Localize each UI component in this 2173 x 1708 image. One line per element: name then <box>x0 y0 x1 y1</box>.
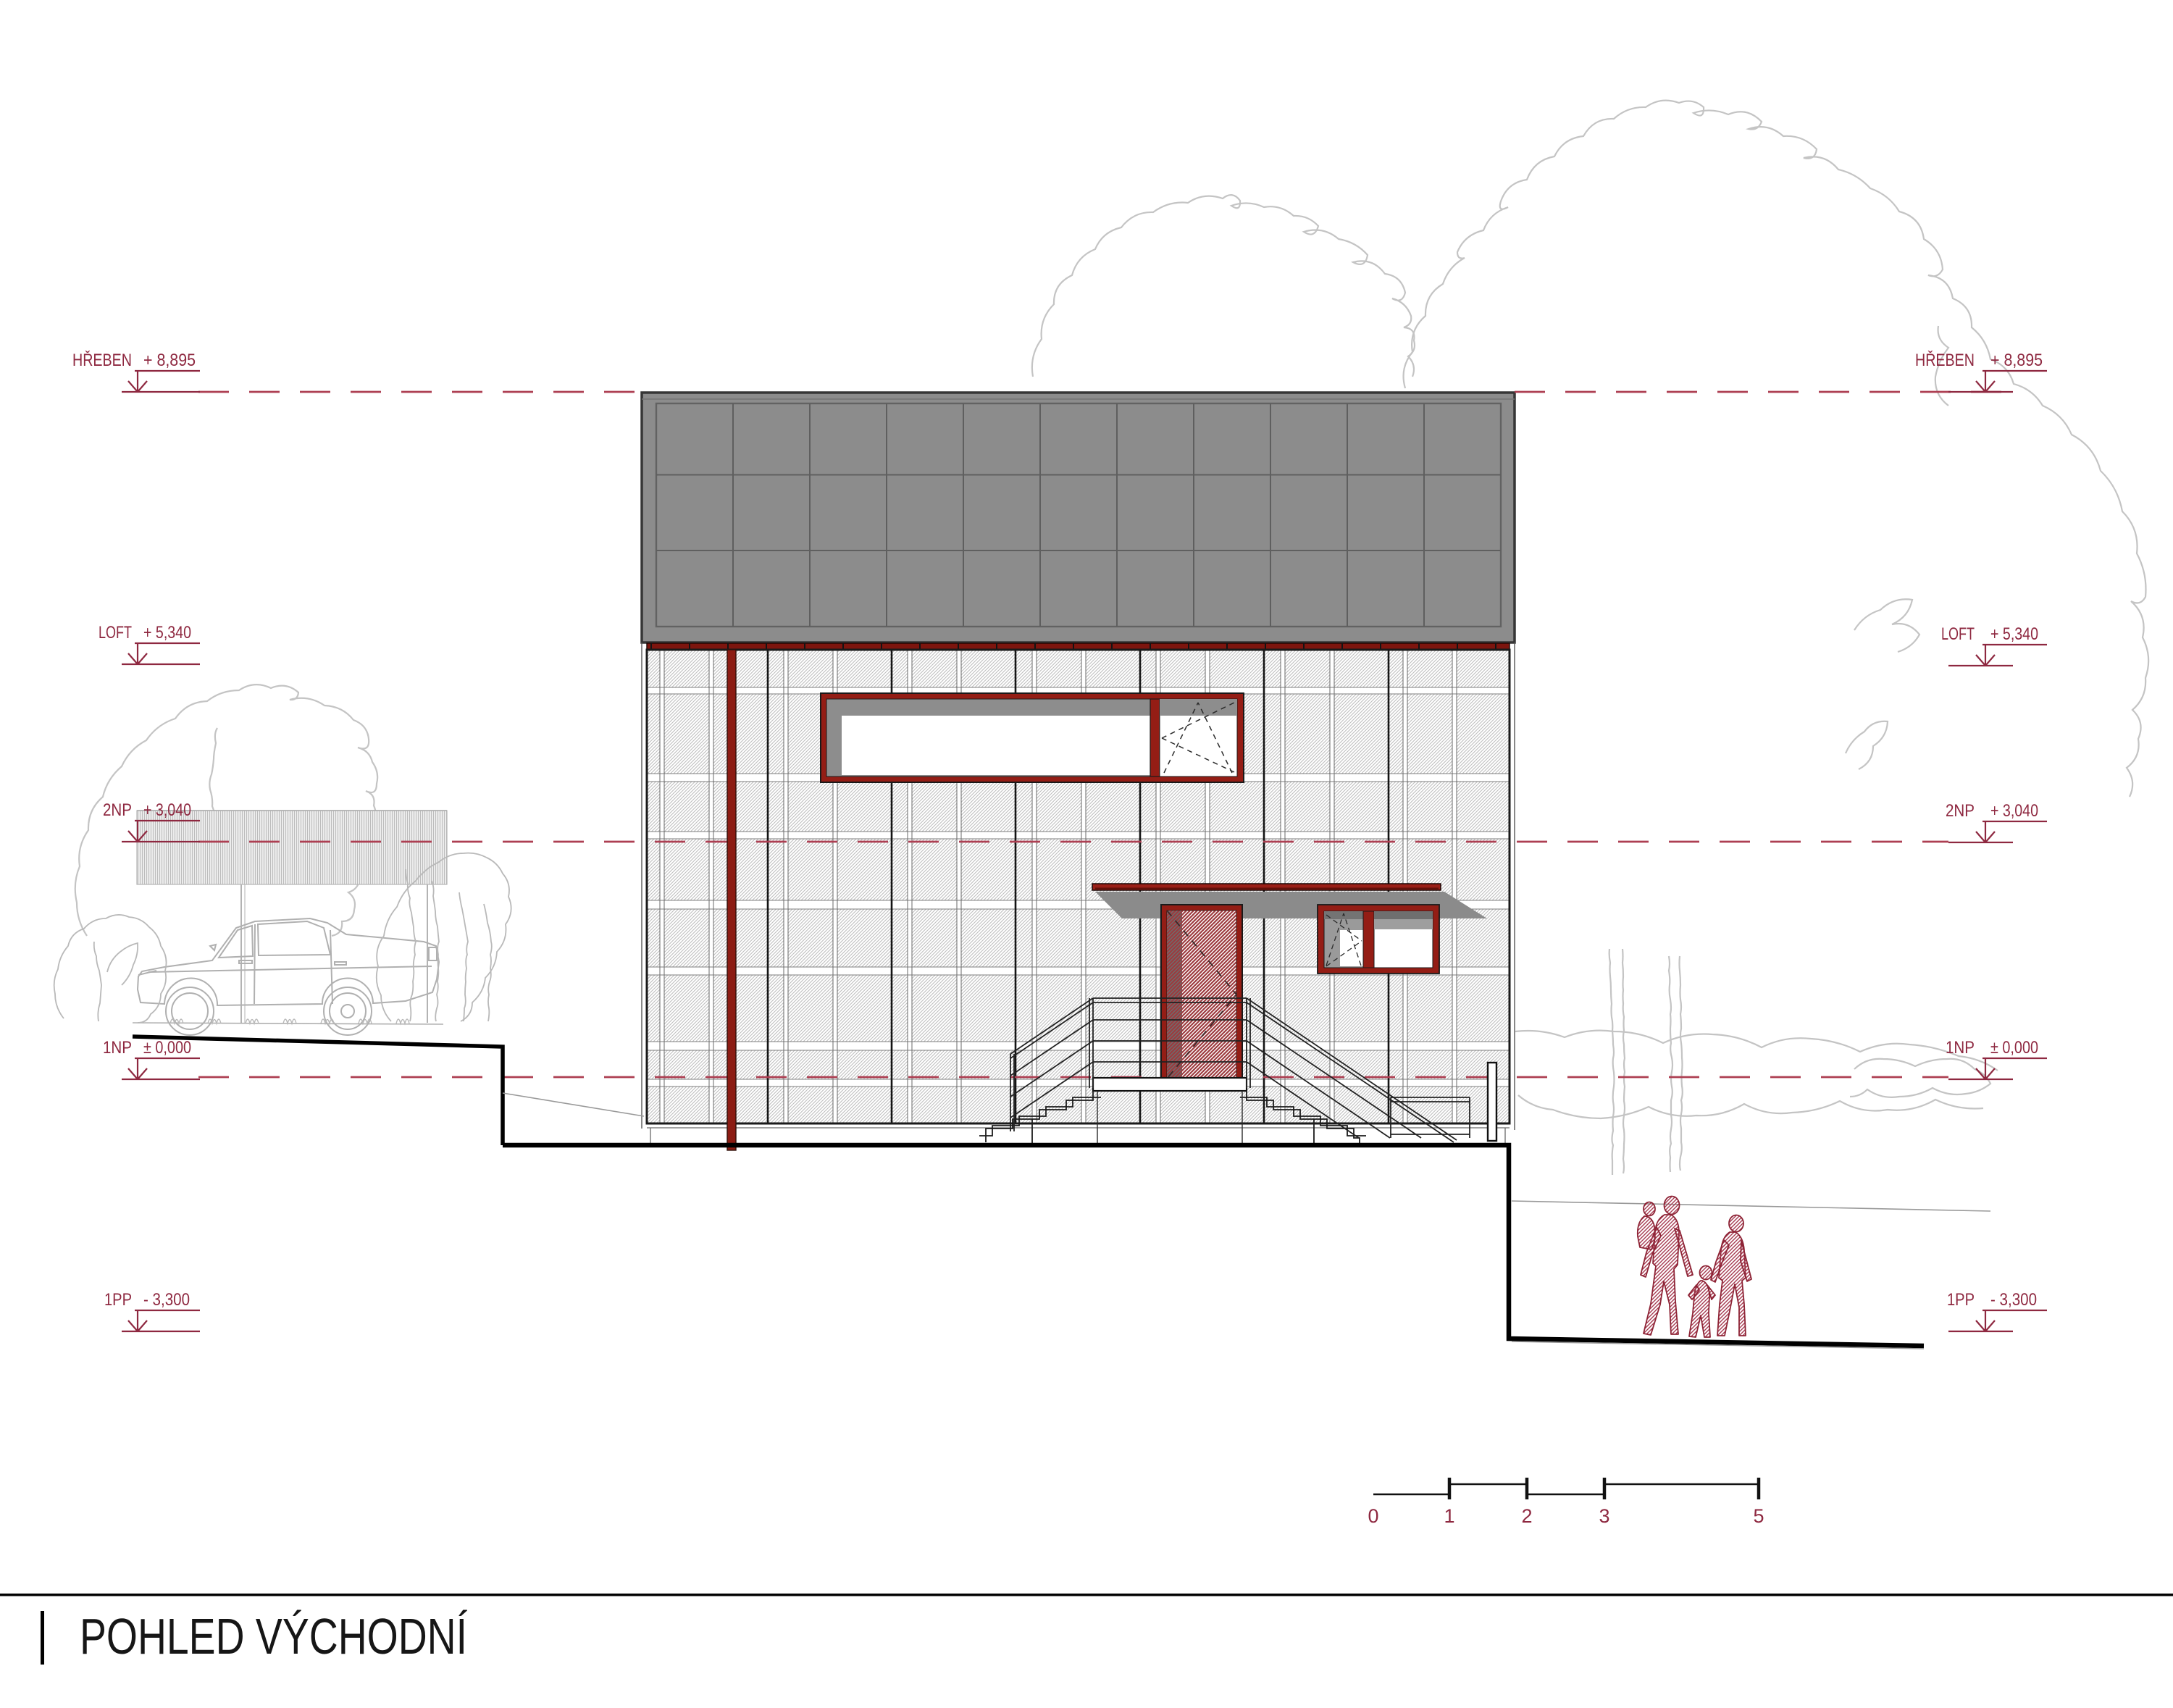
svg-text:LOFT: LOFT <box>99 623 132 642</box>
svg-text:3: 3 <box>1599 1505 1609 1527</box>
svg-text:1NP: 1NP <box>103 1038 132 1058</box>
svg-text:- 3,300: - 3,300 <box>143 1290 190 1310</box>
svg-text:+ 8,895: + 8,895 <box>143 351 196 370</box>
svg-text:1NP: 1NP <box>1946 1038 1975 1058</box>
svg-text:- 3,300: - 3,300 <box>1990 1290 2037 1310</box>
svg-text:POHLED VÝCHODNÍ: POHLED VÝCHODNÍ <box>80 1608 467 1665</box>
svg-text:2NP: 2NP <box>1946 801 1975 821</box>
svg-text:LOFT: LOFT <box>1941 624 1975 644</box>
svg-text:+ 5,340: + 5,340 <box>1990 624 2038 644</box>
svg-text:1: 1 <box>1444 1505 1454 1527</box>
svg-text:1PP: 1PP <box>1947 1290 1975 1310</box>
svg-text:+ 3,040: + 3,040 <box>143 800 191 820</box>
svg-text:5: 5 <box>1753 1505 1764 1527</box>
svg-text:HŘEBEN: HŘEBEN <box>72 351 132 370</box>
svg-text:2NP: 2NP <box>103 800 132 820</box>
svg-text:+ 5,340: + 5,340 <box>143 623 191 642</box>
svg-text:2: 2 <box>1521 1505 1532 1527</box>
svg-text:± 0,000: ± 0,000 <box>1990 1038 2038 1058</box>
svg-text:0: 0 <box>1368 1505 1378 1527</box>
svg-text:1PP: 1PP <box>104 1290 132 1310</box>
svg-text:+ 8,895: + 8,895 <box>1990 351 2043 370</box>
svg-text:+ 3,040: + 3,040 <box>1990 801 2038 821</box>
svg-text:± 0,000: ± 0,000 <box>143 1038 191 1058</box>
svg-text:HŘEBEN: HŘEBEN <box>1915 351 1975 370</box>
